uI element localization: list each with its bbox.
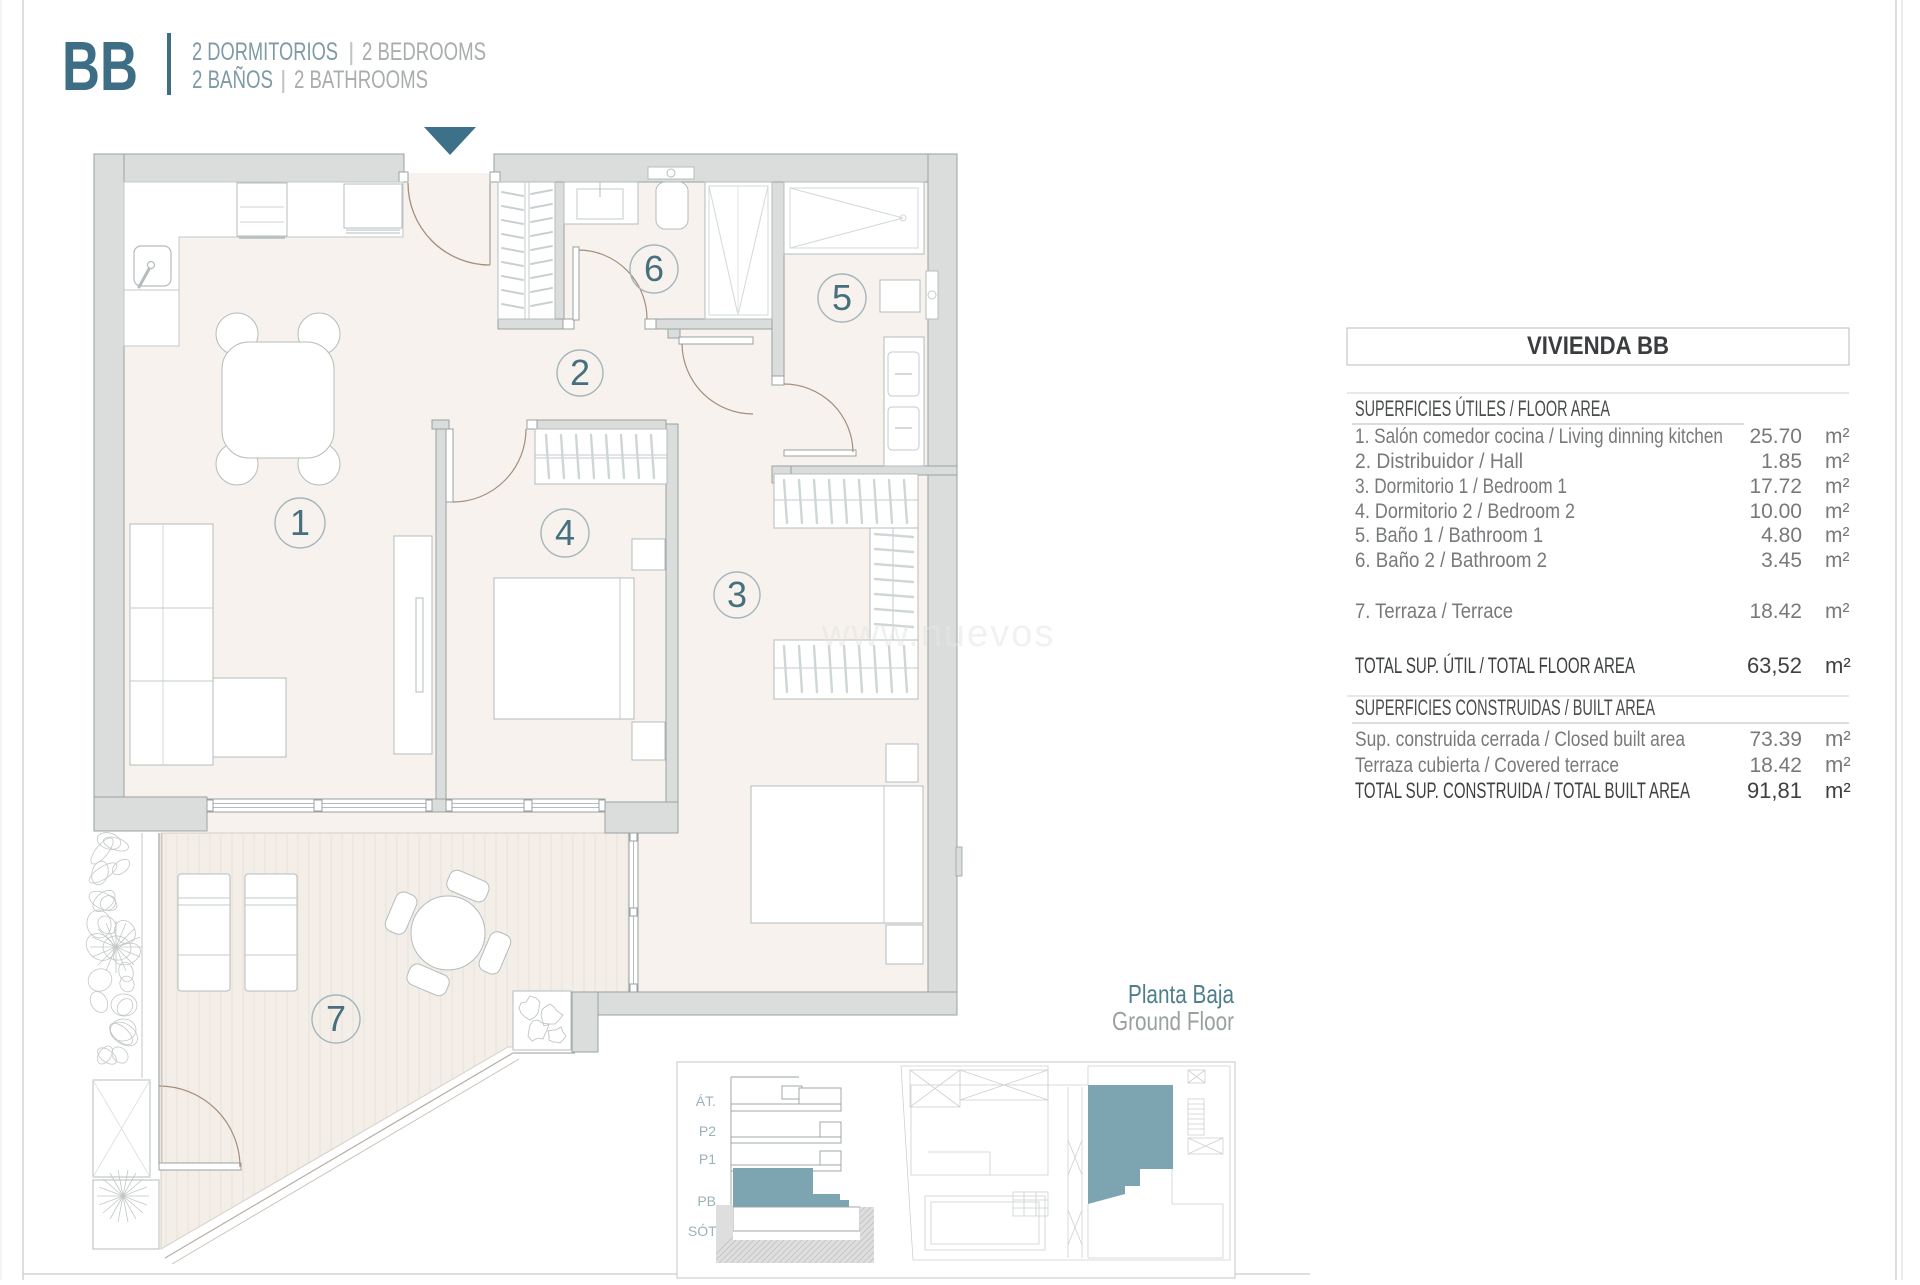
svg-text:2 BATHROOMS: 2 BATHROOMS — [294, 66, 428, 94]
svg-text:m²: m² — [1825, 450, 1850, 473]
svg-text:2: 2 — [570, 352, 590, 393]
svg-text:VIVIENDA BB: VIVIENDA BB — [1527, 332, 1669, 360]
svg-text:TOTAL SUP. ÚTIL / TOTAL FLOOR: TOTAL SUP. ÚTIL / TOTAL FLOOR AREA — [1355, 653, 1635, 678]
svg-text:7. Terraza / Terrace: 7. Terraza / Terrace — [1355, 600, 1513, 623]
svg-text:73.39: 73.39 — [1749, 728, 1802, 751]
svg-text:3: 3 — [727, 574, 747, 615]
svg-text:4. Dormitorio 2 / Bedroom 2: 4. Dormitorio 2 / Bedroom 2 — [1355, 500, 1575, 523]
svg-text:1: 1 — [290, 502, 310, 543]
svg-text:m²: m² — [1825, 778, 1851, 803]
svg-text:BB: BB — [62, 27, 138, 105]
svg-text:m²: m² — [1825, 752, 1851, 777]
svg-text:5: 5 — [832, 277, 852, 318]
svg-text:P2: P2 — [699, 1123, 716, 1139]
svg-text:6. Baño 2 / Bathroom 2: 6. Baño 2 / Bathroom 2 — [1355, 549, 1547, 572]
svg-text:3. Dormitorio 1 / Bedroom 1: 3. Dormitorio 1 / Bedroom 1 — [1355, 475, 1567, 498]
svg-text:SÓT.: SÓT. — [688, 1223, 719, 1239]
svg-text:2 BAÑOS: 2 BAÑOS — [192, 65, 273, 94]
svg-text:|: | — [280, 66, 287, 94]
svg-text:63,52: 63,52 — [1747, 653, 1802, 678]
svg-text:|: | — [348, 38, 355, 66]
svg-text:10.00: 10.00 — [1749, 500, 1802, 523]
svg-text:www.nuevos: www.nuevos — [821, 613, 1055, 655]
svg-text:P1: P1 — [699, 1151, 716, 1167]
svg-text:4.80: 4.80 — [1761, 524, 1802, 547]
svg-text:SUPERFICIES CONSTRUIDAS / BUIL: SUPERFICIES CONSTRUIDAS / BUILT AREA — [1355, 695, 1655, 720]
svg-text:2 BEDROOMS: 2 BEDROOMS — [362, 38, 486, 66]
svg-text:TOTAL SUP. CONSTRUIDA / TOTAL: TOTAL SUP. CONSTRUIDA / TOTAL BUILT AREA — [1355, 778, 1690, 803]
svg-text:m²: m² — [1825, 549, 1850, 572]
svg-text:m²: m² — [1825, 524, 1850, 547]
svg-text:ÁT.: ÁT. — [696, 1093, 716, 1109]
svg-text:1. Salón comedor cocina / Livi: 1. Salón comedor cocina / Living dinning… — [1355, 425, 1723, 448]
svg-text:17.72: 17.72 — [1749, 475, 1802, 498]
svg-text:Sup. construida cerrada / Clos: Sup. construida cerrada / Closed built a… — [1355, 728, 1685, 751]
svg-text:18.42: 18.42 — [1749, 600, 1802, 623]
svg-text:25.70: 25.70 — [1749, 425, 1802, 448]
svg-text:m²: m² — [1825, 600, 1850, 623]
svg-text:3.45: 3.45 — [1761, 549, 1802, 572]
svg-text:m²: m² — [1825, 726, 1851, 751]
svg-text:m²: m² — [1825, 500, 1850, 523]
svg-text:Ground Floor: Ground Floor — [1112, 1006, 1234, 1036]
svg-text:4: 4 — [555, 512, 575, 553]
svg-text:1.85: 1.85 — [1761, 450, 1802, 473]
svg-text:PB: PB — [697, 1193, 716, 1209]
svg-text:91,81: 91,81 — [1747, 778, 1802, 803]
svg-text:SUPERFICIES ÚTILES / FLOOR ARE: SUPERFICIES ÚTILES / FLOOR AREA — [1355, 396, 1610, 421]
svg-text:m²: m² — [1825, 425, 1850, 448]
svg-text:m²: m² — [1825, 653, 1851, 678]
svg-text:5. Baño 1 / Bathroom 1: 5. Baño 1 / Bathroom 1 — [1355, 524, 1543, 547]
svg-text:6: 6 — [644, 248, 664, 289]
svg-text:Terraza cubierta / Covered ter: Terraza cubierta / Covered terrace — [1355, 754, 1619, 777]
svg-text:Planta Baja: Planta Baja — [1128, 979, 1234, 1009]
svg-text:m²: m² — [1825, 475, 1850, 498]
svg-text:7: 7 — [326, 998, 346, 1039]
svg-text:2 DORMITORIOS: 2 DORMITORIOS — [192, 38, 338, 66]
svg-text:2. Distribuidor / Hall: 2. Distribuidor / Hall — [1355, 450, 1523, 473]
svg-text:18.42: 18.42 — [1749, 754, 1802, 777]
